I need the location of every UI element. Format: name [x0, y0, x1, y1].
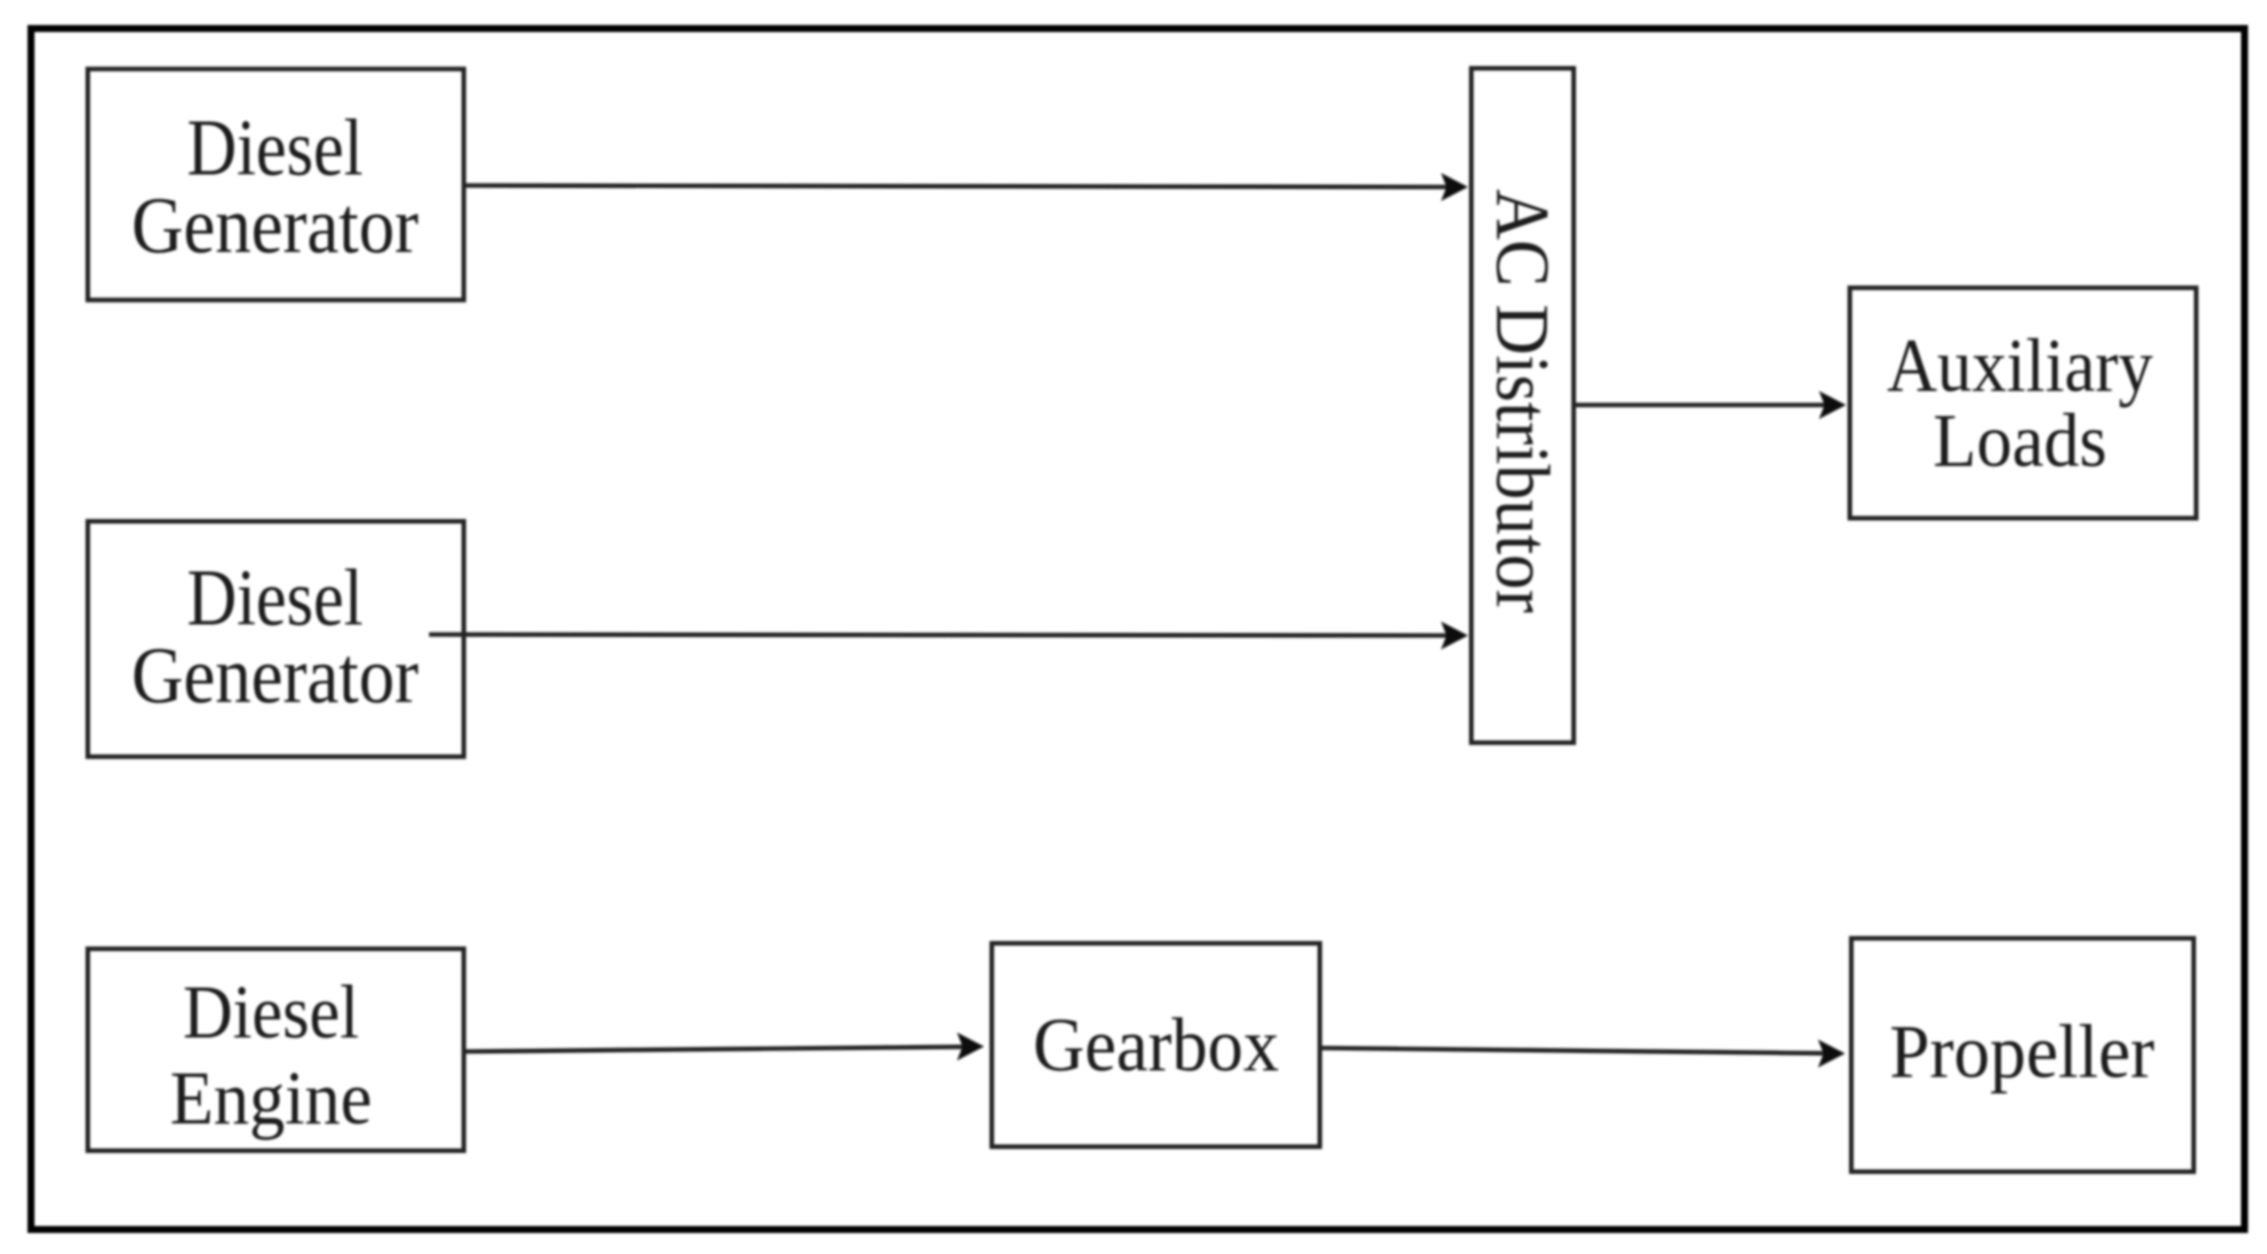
svg-text:Engine: Engine: [170, 1057, 372, 1141]
svg-text:Generator: Generator: [132, 632, 419, 720]
svg-text:Diesel: Diesel: [187, 105, 363, 193]
svg-text:Diesel: Diesel: [183, 971, 359, 1055]
svg-text:Generator: Generator: [132, 182, 419, 270]
svg-text:Propeller: Propeller: [1890, 1010, 2155, 1094]
svg-text:AC Distributor: AC Distributor: [1480, 189, 1564, 613]
svg-text:Gearbox: Gearbox: [1033, 1004, 1279, 1088]
svg-text:Diesel: Diesel: [187, 555, 363, 643]
svg-text:Auxiliary: Auxiliary: [1887, 324, 2153, 408]
svg-text:Loads: Loads: [1933, 399, 2107, 483]
